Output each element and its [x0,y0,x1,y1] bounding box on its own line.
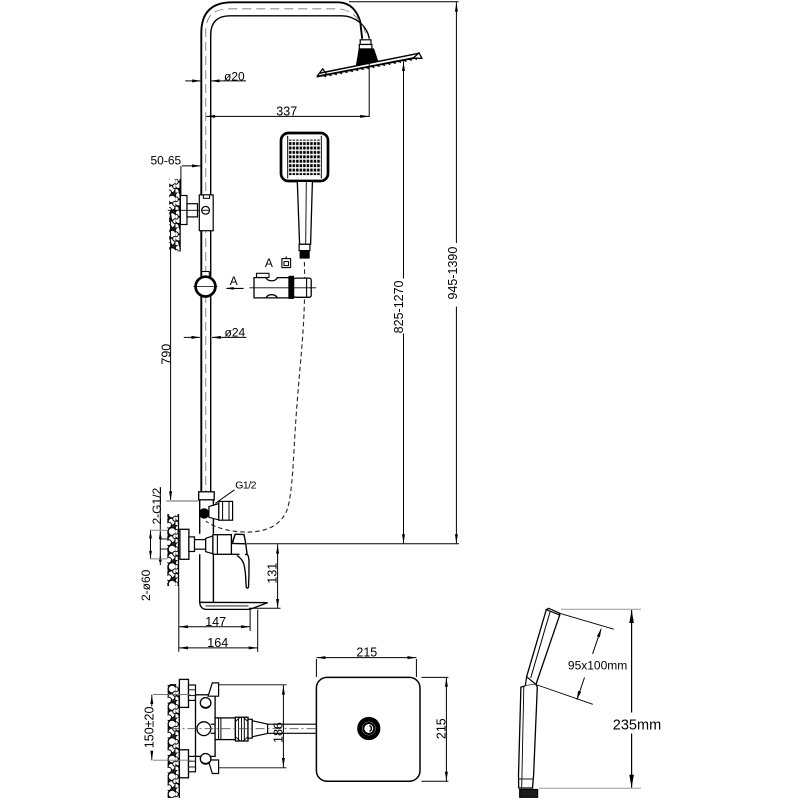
svg-text:186: 186 [271,722,285,743]
svg-text:147: 147 [205,615,226,629]
svg-text:215: 215 [356,646,377,660]
svg-text:945-1390: 945-1390 [446,247,460,300]
svg-text:235mm: 235mm [613,717,661,733]
svg-text:ø24: ø24 [225,326,246,340]
svg-text:G1/2: G1/2 [235,480,256,492]
svg-text:2-G1/2: 2-G1/2 [150,487,164,524]
svg-text:825-1270: 825-1270 [392,280,406,333]
svg-text:790: 790 [160,344,174,365]
svg-text:95x100mm: 95x100mm [568,658,627,672]
svg-text:150±20: 150±20 [143,707,157,749]
svg-text:337: 337 [276,105,297,119]
svg-text:215: 215 [435,718,449,739]
svg-text:ø20: ø20 [224,69,245,83]
svg-text:164: 164 [207,636,228,650]
svg-text:131: 131 [266,563,280,584]
svg-text:50-65: 50-65 [151,154,182,168]
svg-text:2-ø60: 2-ø60 [139,569,153,601]
svg-text:A: A [230,274,238,288]
svg-text:A: A [265,256,273,270]
